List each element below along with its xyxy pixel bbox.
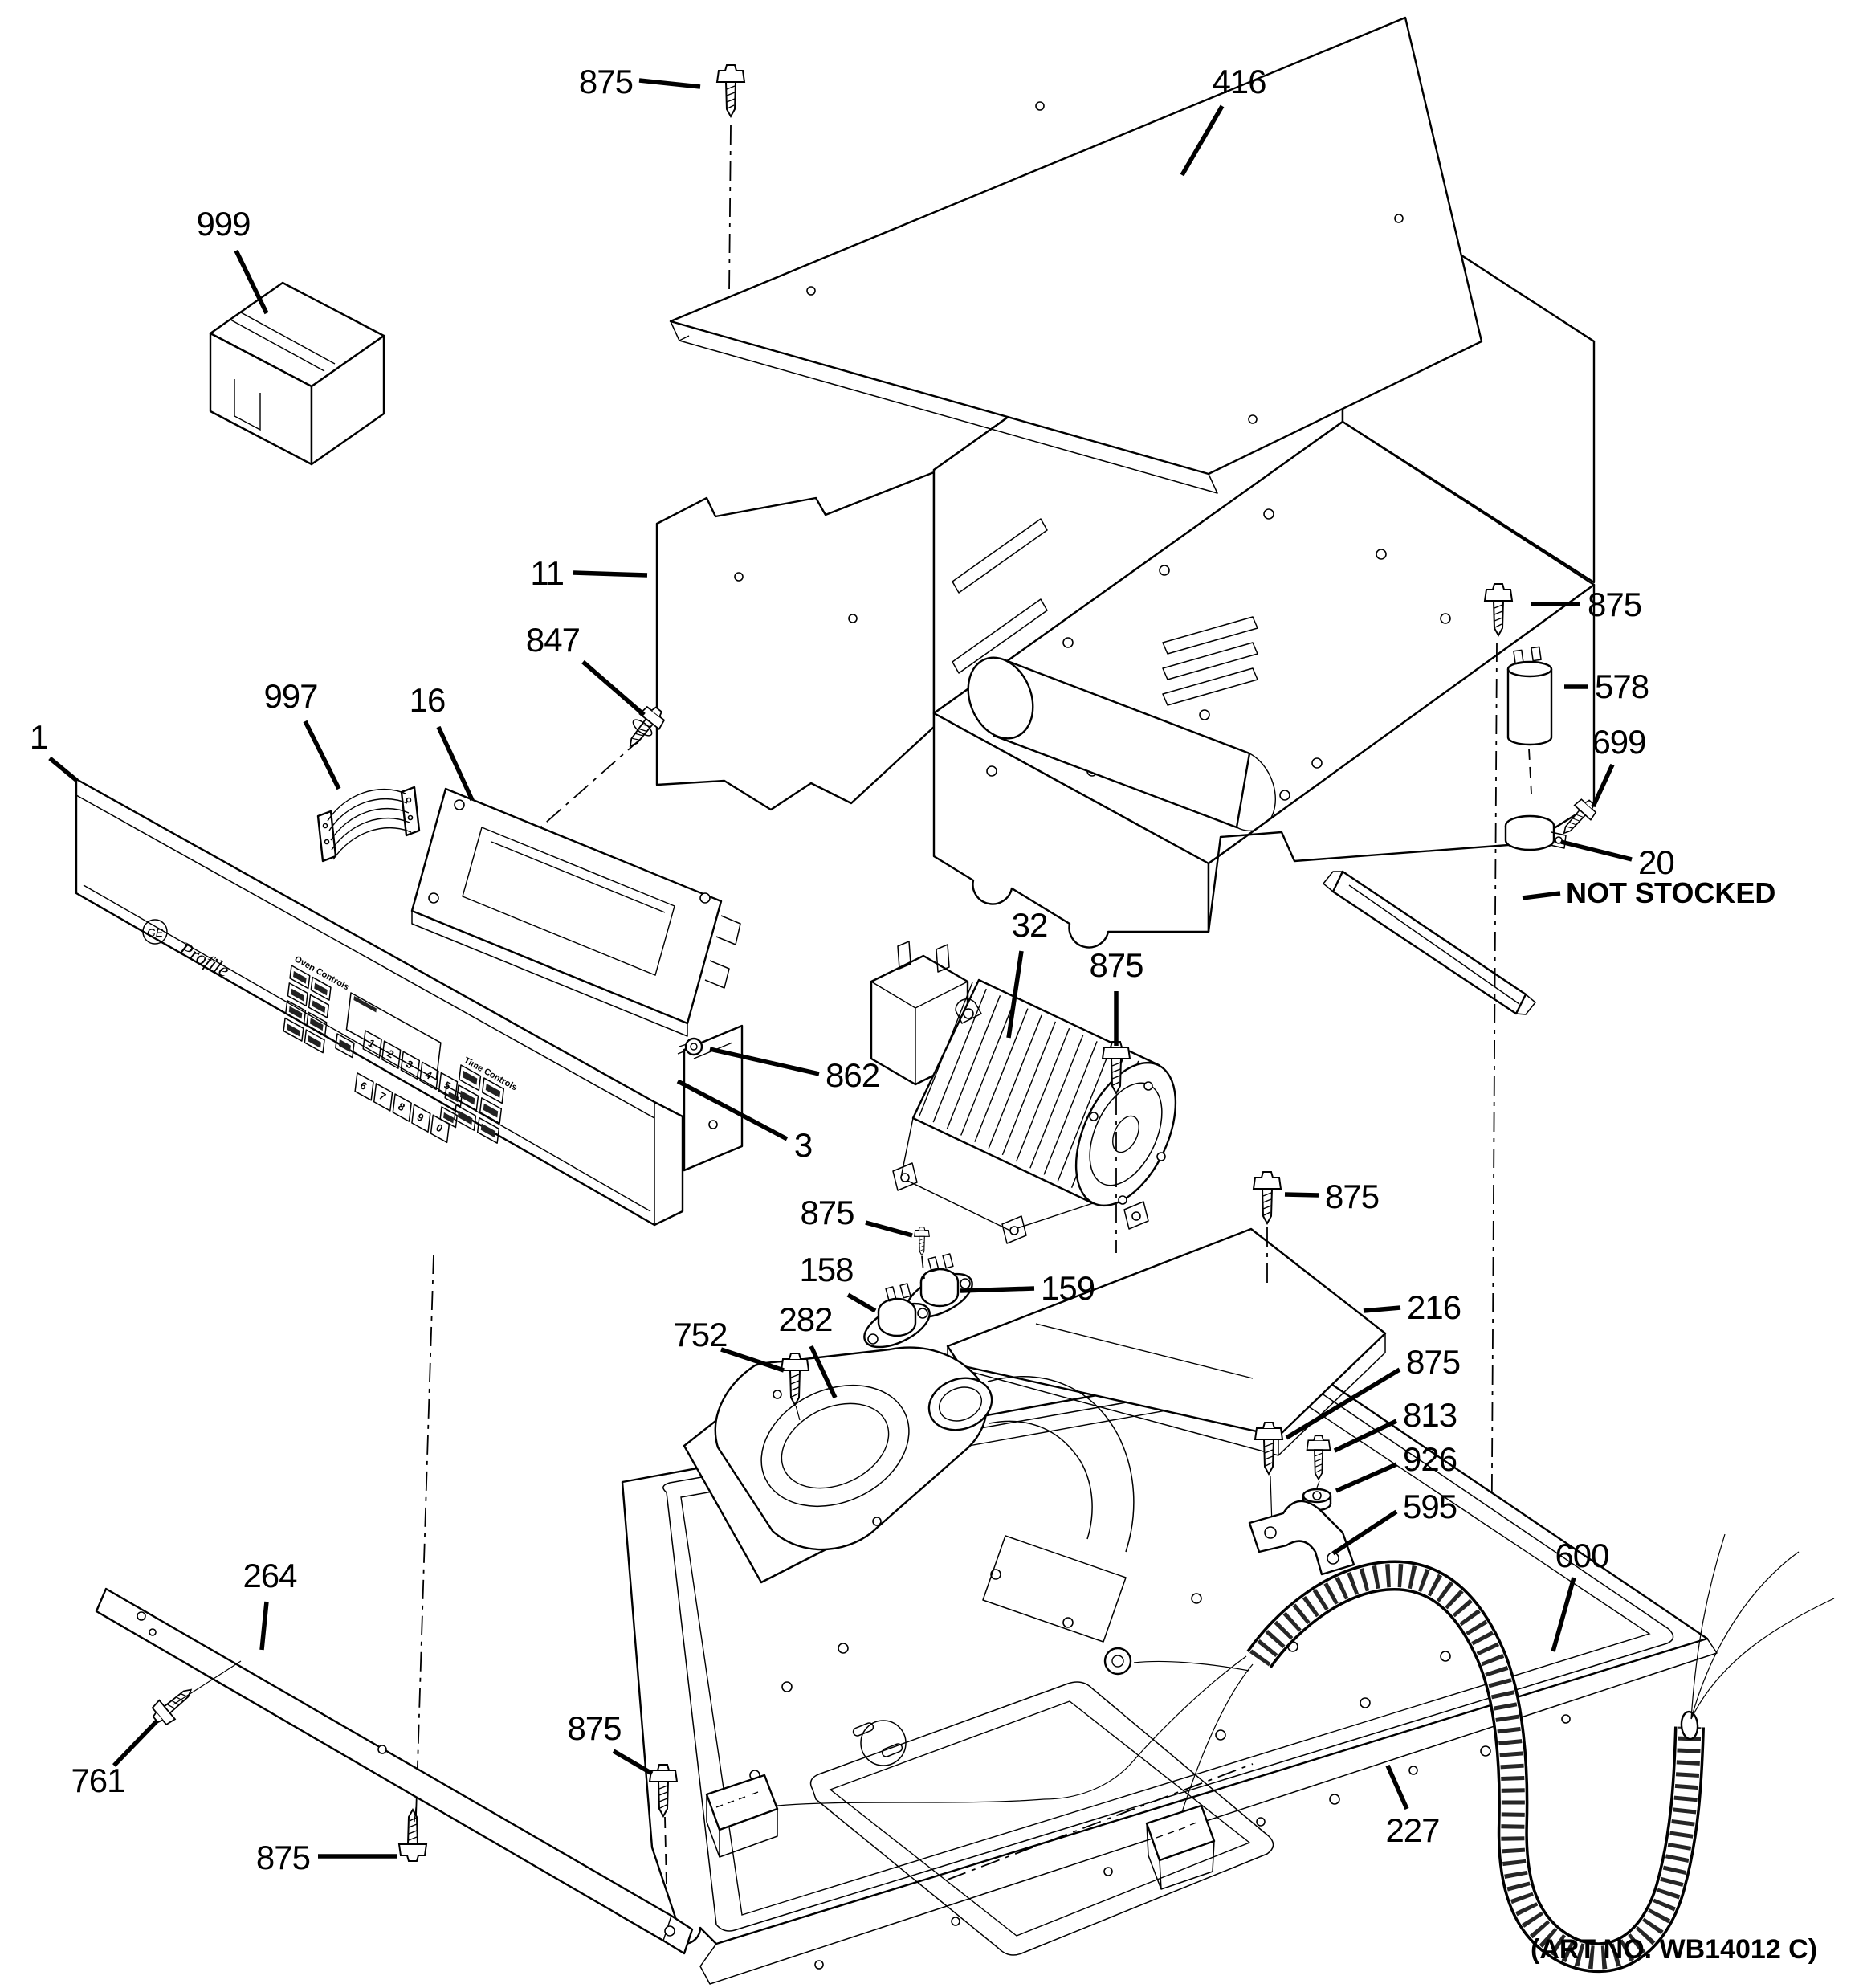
ring-terminal [1105,1648,1131,1674]
callout-leader-line [639,80,700,87]
screw-875-top [717,65,744,294]
callout-875: 875 [579,63,700,100]
callout-leader-line [1561,842,1632,859]
callout-875: 875 [1089,946,1143,1046]
callout-label: 264 [243,1557,297,1594]
callout-875: 875 [1285,1178,1379,1215]
callout-875: 875 [256,1839,397,1876]
callout-label: 875 [1588,586,1641,623]
exploded-view-diagram: GE Profile Oven Controls Time Controls 1… [0,0,1863,1988]
callout-leader-line [1285,1194,1319,1195]
blower-assembly-32 [871,941,1196,1243]
callout-875: 875 [800,1194,912,1235]
callout-leader-line [583,662,644,715]
parts-diagram-page: { "art_no": "(ART NO. WB14012 C)", "bran… [0,0,1863,1988]
callout-leader-line [305,721,339,789]
callout-label: 862 [826,1056,879,1094]
not-stocked-bracket [1323,872,1535,1014]
callout-label: 875 [579,63,633,100]
callout-20: 20 [1561,842,1674,881]
callout-label: 875 [256,1839,310,1876]
callout-264: 264 [243,1557,297,1650]
callout-label: 158 [799,1251,853,1288]
callout-label: 32 [1012,906,1048,944]
callout-label: 997 [263,677,317,715]
callout-label: 416 [1212,63,1266,100]
art-number: (ART NO. WB14012 C) [1531,1934,1817,1965]
callout-label: 20 [1638,843,1674,881]
callout-label: 999 [196,205,250,243]
callout-label: 227 [1385,1811,1439,1849]
callout-leader-line [262,1602,267,1650]
digit-key-label: 9 [415,1111,426,1125]
callout-label: NOT STOCKED [1566,876,1775,909]
screw-862 [678,1039,702,1055]
ge-logo-text: GE [147,926,164,939]
digit-key-label: 7 [377,1090,389,1104]
callout-label: 875 [1406,1343,1460,1381]
callout-1: 1 [30,718,77,781]
callout-227: 227 [1385,1766,1439,1849]
callout-699: 699 [1592,723,1645,806]
callout-label: 875 [567,1709,621,1747]
ribbon-cable-997 [318,787,419,861]
callout-label: 813 [1403,1396,1457,1434]
trim-strip-264 [96,1589,692,1953]
callout-159: 159 [960,1269,1095,1307]
digit-key-label: 6 [358,1079,369,1092]
callout-label: 699 [1592,723,1645,761]
callout-label: 1 [30,718,47,756]
callout-leader-line [848,1295,875,1311]
screw-875-thermostat [915,1227,930,1279]
callout-label: 926 [1403,1440,1457,1478]
callout-leader-line [960,1288,1034,1291]
callout-label: 875 [1089,946,1143,984]
side-panel-11 [657,472,934,810]
callout-leader-line [114,1721,157,1766]
callout-not-stocked: NOT STOCKED [1523,876,1775,909]
callout-label: 11 [530,554,564,592]
callout-847: 847 [526,621,644,715]
callout-label: 847 [526,621,580,659]
part-box-999 [210,283,384,464]
callout-label: 578 [1595,667,1649,705]
callout-leader-line [50,758,77,781]
screw-875-strip-center [399,1807,426,1861]
callout-label: 600 [1555,1537,1608,1574]
callout-997: 997 [263,677,339,789]
digit-key-label: 8 [396,1100,407,1114]
connector-plug-right [1147,1806,1214,1889]
callout-label: 282 [778,1300,832,1338]
callout-216: 216 [1364,1288,1461,1326]
callout-leader-line [1593,765,1612,806]
callout-label: 16 [410,681,446,719]
digit-key-label: 0 [434,1121,445,1135]
callout-leader-line [1388,1766,1407,1809]
callout-leader-line [438,727,472,800]
callout-leader-line [1523,893,1560,898]
callout-label: 3 [794,1126,812,1164]
callout-label: 595 [1403,1488,1457,1525]
callout-875: 875 [567,1709,652,1774]
callout-16: 16 [410,681,472,800]
callout-761: 761 [71,1721,157,1799]
callout-999: 999 [196,205,267,313]
callout-label: 752 [673,1316,727,1353]
callout-11: 11 [530,554,647,592]
callout-leader-line [866,1223,912,1235]
callout-label: 216 [1407,1288,1461,1326]
callout-leader-line [573,573,647,575]
callout-label: 875 [800,1194,854,1231]
callout-label: 875 [1325,1178,1379,1215]
callout-label: 159 [1041,1269,1095,1307]
callout-leader-line [1364,1308,1400,1311]
callout-label: 761 [71,1761,124,1799]
